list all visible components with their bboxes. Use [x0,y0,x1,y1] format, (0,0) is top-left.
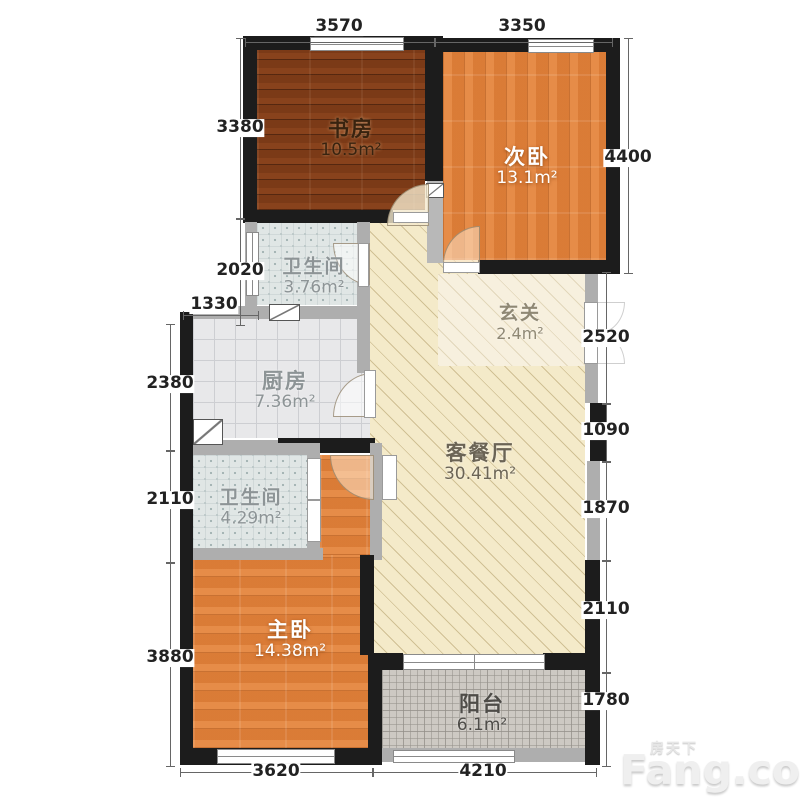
dim-line-top-1 [245,38,436,47]
wall-kitchen-right [357,318,370,373]
dim-label-right-2110: 2110 [581,601,630,619]
wall-balcony-left [368,653,382,765]
room-label-kitchen: 厨房 7.36m² [254,369,315,413]
room-area-bath1: 3.76m² [282,278,345,298]
wall-bath2-bottom [193,548,323,560]
dim-label-right-1870: 1870 [581,500,630,518]
dim-label-bottom-3620: 3620 [251,763,300,781]
floorplan-canvas: 3570 3350 3380 2020 1330 2380 2110 3880 … [0,0,800,800]
dim-label-bottom-4210: 4210 [458,763,507,781]
dim-label-left-2380: 2380 [145,375,194,393]
room-name-foyer: 玄关 [496,303,543,325]
room-name-kitchen: 厨房 [254,369,315,393]
dim-label-top-1: 3570 [314,18,363,36]
wall-foyer-right-bottom [585,362,598,403]
room-name-study: 书房 [320,117,381,141]
wall-bottom-study [243,210,393,223]
room-area-kitchen: 7.36m² [254,393,315,413]
dim-line-right-1780 [602,672,611,767]
room-label-living: 客餐厅 30.41m² [444,441,516,485]
wall-divider-study-bedroom2 [425,36,443,181]
room-label-balcony: 阳台 6.1m² [457,692,507,736]
door-leaf-master [382,455,397,500]
room-area-balcony: 6.1m² [457,716,507,736]
watermark-fang-logo: Fang.com [620,746,800,794]
room-name-master: 主卧 [254,618,326,642]
room-label-bedroom2: 次卧 13.1m² [496,145,557,189]
vent-box-bath1 [269,304,300,321]
room-name-living: 客餐厅 [444,441,516,465]
dim-label-left-2020: 2020 [215,262,264,280]
door-leaf-bedroom2 [443,262,480,273]
door-leaf-bath1 [358,243,369,287]
wall-right-2110-1780 [585,560,600,765]
room-name-balcony: 阳台 [457,692,507,716]
room-area-bedroom2: 13.1m² [496,169,557,189]
room-name-bedroom2: 次卧 [496,145,557,169]
dim-label-right-4400: 4400 [603,149,652,167]
room-name-bath2: 卫生间 [219,487,282,509]
dim-label-right-1780: 1780 [581,692,630,710]
dim-label-right-1090: 1090 [581,422,630,440]
pocket-door-bath2-a [307,458,321,500]
room-label-bath2: 卫生间 4.29m² [219,487,282,528]
dim-label-left-1330: 1330 [189,296,238,314]
room-label-bath1: 卫生间 3.76m² [282,256,345,297]
sliding-door-balcony [403,654,545,670]
vent-box-kitchen [193,419,223,445]
wall-master-right [360,555,374,655]
room-label-master: 主卧 14.38m² [254,618,326,662]
dim-label-top-2: 3350 [497,18,546,36]
room-label-foyer: 玄关 2.4m² [496,303,543,343]
pocket-door-bath2-b [307,500,321,542]
door-leaf-kitchen [364,370,376,418]
dim-label-left-3380: 3380 [215,119,264,137]
wall-bottom-bedroom2 [478,260,620,274]
room-area-foyer: 2.4m² [496,325,543,343]
dim-label-left-3880: 3880 [145,649,194,667]
room-name-bath1: 卫生间 [282,256,345,278]
dim-label-left-2110: 2110 [145,491,194,509]
wall-foyer-right-top [585,274,598,302]
door-leaf-study [393,212,429,223]
room-area-master: 14.38m² [254,642,326,662]
room-area-study: 10.5m² [320,141,381,161]
room-label-study: 书房 10.5m² [320,117,381,161]
room-area-bath2: 4.29m² [219,509,282,529]
dim-label-right-2520: 2520 [581,329,630,347]
room-area-living: 30.41m² [444,465,516,485]
dim-line-top-2 [434,38,613,47]
